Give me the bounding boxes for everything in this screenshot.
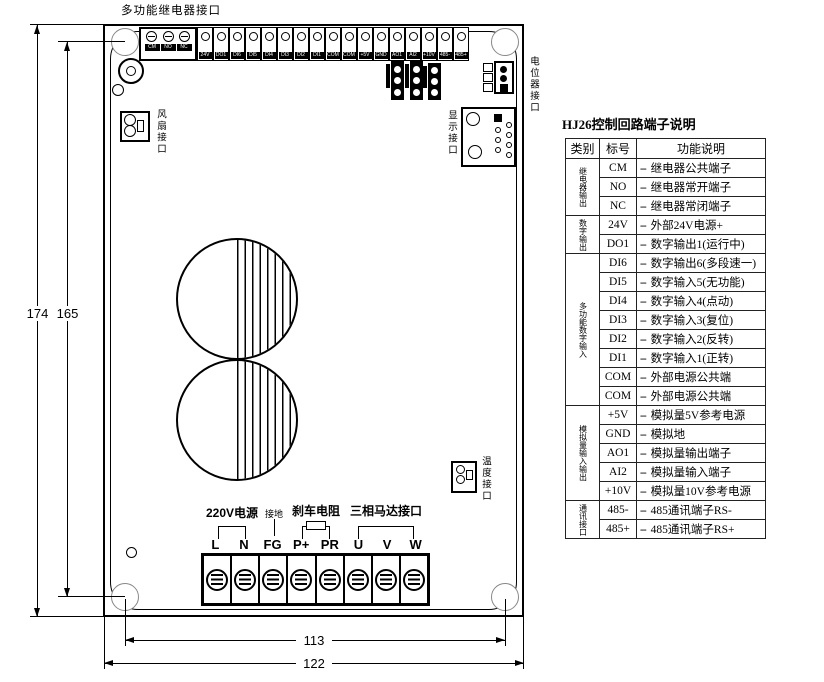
control-terminal-cell: DO1 [213, 27, 229, 61]
table-title: HJ26控制回路端子说明 [562, 114, 696, 133]
power-terminal-screw [262, 569, 284, 591]
power-terminal-label: W [401, 537, 430, 552]
display-hole [468, 145, 482, 159]
dim-arrow [125, 637, 134, 643]
control-terminal-screw [201, 32, 210, 41]
power-terminal-screw [234, 569, 256, 591]
control-terminal-label: DI4 [263, 52, 276, 59]
desc-dash: -- [640, 429, 646, 441]
power-terminal-cell [345, 556, 373, 603]
control-terminal-cell: 24V [197, 27, 213, 61]
control-terminal-screw [265, 32, 274, 41]
desc-cell: --外部电源公共端 [637, 387, 766, 406]
control-terminal-cell: 485+ [453, 27, 469, 61]
control-terminal-cell: AI2 [405, 27, 421, 61]
power-terminal-cell [373, 556, 401, 603]
code-cell: DI6 [600, 254, 637, 273]
control-terminal-screw [281, 32, 290, 41]
display-pin [506, 152, 512, 158]
power-terminal-screw [403, 569, 425, 591]
fan-pin [124, 125, 136, 137]
pot-interface-label: 电位器接口 [528, 56, 539, 114]
code-cell: GND [600, 425, 637, 444]
jumper-tag [423, 66, 427, 88]
desc-cell: --模拟地 [637, 425, 766, 444]
desc-dash: -- [640, 353, 646, 365]
code-cell: 485+ [600, 520, 637, 539]
power-terminal-label: N [230, 537, 259, 552]
ground-leader-line [274, 519, 275, 536]
control-terminal-screw [441, 32, 450, 41]
control-terminal-label: DI3 [279, 52, 292, 59]
extension-line [30, 616, 103, 617]
desc-dash: -- [640, 391, 646, 403]
control-terminal-screw [297, 32, 306, 41]
dim-value-width-holes: 113 [296, 633, 332, 648]
relay-terminal-label: NO [161, 44, 176, 51]
desc-cell: --485通讯端子RS+ [637, 520, 766, 539]
power-terminal-cell [260, 556, 288, 603]
power-terminal-label: L [201, 537, 230, 552]
control-terminal-label: AO1 [391, 52, 404, 59]
capacitor-top [176, 238, 298, 360]
temp-tab [466, 470, 473, 480]
display-pin [506, 142, 512, 148]
control-terminal-label: GND [375, 52, 388, 59]
display-pin [506, 122, 512, 128]
control-terminal-screw [329, 32, 338, 41]
category-cell: 通讯接口 [566, 501, 600, 539]
control-terminal-cell: DI2 [293, 27, 309, 61]
display-pin [495, 137, 501, 143]
dim-arrow [515, 660, 524, 666]
code-cell: NC [600, 197, 637, 216]
desc-cell: --继电器公共端子 [637, 159, 766, 178]
desc-dash: -- [640, 524, 646, 536]
code-cell: COM [600, 387, 637, 406]
motor-group-label: 三相马达接口 [346, 502, 426, 519]
jumper-tag [386, 64, 390, 88]
control-terminal-label: 485- [439, 52, 452, 59]
pcb-terminal-diagram: 多功能继电器接口 CMNONC 24VDO1DI6DI5DI4DI3DI2DI1… [0, 0, 824, 682]
desc-cell: --模拟量10V参考电源 [637, 482, 766, 501]
desc-cell: --模拟量5V参考电源 [637, 406, 766, 425]
code-cell: 24V [600, 216, 637, 235]
control-terminal-cell: +5V [357, 27, 373, 61]
relay-labels: CMNONC [141, 44, 195, 51]
code-cell: +5V [600, 406, 637, 425]
power-terminal-block [201, 553, 430, 606]
fan-tab [137, 120, 144, 132]
power-terminal-cell [232, 556, 260, 603]
power-terminal-screw [290, 569, 312, 591]
control-terminal-screw [249, 32, 258, 41]
desc-dash: -- [640, 486, 646, 498]
desc-dash: -- [640, 239, 646, 251]
control-terminal-label: DO1 [215, 52, 228, 59]
dim-arrow [64, 42, 70, 51]
desc-cell: --模拟量输入端子 [637, 463, 766, 482]
temp-interface-label: 温度接口 [480, 456, 491, 502]
control-terminal-cell: DI1 [309, 27, 325, 61]
power-terminal-labels: LNFGP+PRUVW [201, 537, 430, 552]
relay-terminal-screw [146, 31, 157, 42]
display-pin [495, 147, 501, 153]
control-terminal-screw [361, 32, 370, 41]
control-terminal-strip: 24VDO1DI6DI5DI4DI3DI2DI1COMCOM+5VGNDAO1A… [197, 27, 469, 61]
display-pin [495, 127, 501, 133]
control-terminal-label: COM [343, 52, 356, 59]
code-cell: CM [600, 159, 637, 178]
control-terminal-cell: AO1 [389, 27, 405, 61]
control-terminal-label: COM [327, 52, 340, 59]
brake-resistor-symbol [306, 521, 326, 530]
code-cell: NO [600, 178, 637, 197]
dim-value-height-holes: 165 [53, 306, 82, 321]
control-terminal-cell: 485- [437, 27, 453, 61]
power-terminal-label: PR [316, 537, 345, 552]
display-pin [506, 132, 512, 138]
table-row: 多功能数字输入DI6--数字输出6(多段速一) [566, 254, 766, 273]
capacitor-bottom [176, 359, 298, 481]
fan-interface-label: 风扇接口 [155, 109, 166, 155]
pot-pin-square [500, 84, 508, 92]
display-hole [466, 112, 480, 126]
control-terminal-label: 485+ [455, 52, 468, 59]
desc-cell: --485通讯端子RS- [637, 501, 766, 520]
power-terminal-cell [317, 556, 345, 603]
power-terminal-label: U [344, 537, 373, 552]
desc-dash: -- [640, 505, 646, 517]
power-terminal-label: FG [258, 537, 287, 552]
table-row: 通讯接口485---485通讯端子RS- [566, 501, 766, 520]
pot-pin-box [483, 73, 493, 82]
control-terminal-screw [217, 32, 226, 41]
control-terminal-cell: COM [325, 27, 341, 61]
power-terminal-cell [204, 556, 232, 603]
power-terminal-label: P+ [287, 537, 316, 552]
desc-dash: -- [640, 315, 646, 327]
power-terminal-screw [206, 569, 228, 591]
ring-hole-inner [126, 66, 136, 76]
terminal-description-table: 类别 标号 功能说明 继电器输出CM--继电器公共端子NO--继电器常开端子NC… [565, 138, 766, 539]
jumper-block-2 [410, 61, 423, 100]
header-function: 功能说明 [637, 139, 766, 159]
desc-cell: --数字输入5(无功能) [637, 273, 766, 292]
desc-cell: --数字输出6(多段速一) [637, 254, 766, 273]
power-terminal-label: V [373, 537, 402, 552]
desc-dash: -- [640, 467, 646, 479]
power-terminal-screw [375, 569, 397, 591]
desc-dash: -- [640, 182, 646, 194]
extension-line [505, 599, 506, 646]
desc-cell: --外部24V电源+ [637, 216, 766, 235]
code-cell: DI1 [600, 349, 637, 368]
relay-terminal-screw [163, 31, 174, 42]
control-terminal-label: DI5 [247, 52, 260, 59]
power-terminal-screw [319, 569, 341, 591]
control-terminal-label: 24V [199, 52, 212, 59]
control-terminal-cell: +10V [421, 27, 437, 61]
control-terminal-screw [233, 32, 242, 41]
control-terminal-screw [457, 32, 466, 41]
relay-screws [141, 29, 195, 42]
desc-dash: -- [640, 334, 646, 346]
table-row: 继电器输出CM--继电器公共端子 [566, 159, 766, 178]
power-terminal-cell [288, 556, 316, 603]
category-cell: 继电器输出 [566, 159, 600, 216]
category-cell: 数字输出 [566, 216, 600, 254]
dim-arrow [34, 608, 40, 617]
jumper-block-3 [428, 63, 441, 100]
pot-pin-box [483, 63, 493, 72]
dim-value-height-outer: 174 [23, 306, 52, 321]
desc-dash: -- [640, 277, 646, 289]
power-terminal-screw [347, 569, 369, 591]
control-terminal-label: AI2 [407, 52, 420, 59]
desc-cell: --继电器常开端子 [637, 178, 766, 197]
pot-pin-box [483, 83, 493, 92]
desc-cell: --外部电源公共端 [637, 368, 766, 387]
control-terminal-screw [377, 32, 386, 41]
control-terminal-label: DI1 [311, 52, 324, 59]
desc-cell: --数字输入4(点动) [637, 292, 766, 311]
control-terminal-screw [393, 32, 402, 41]
header-category: 类别 [566, 139, 600, 159]
code-cell: DI3 [600, 311, 637, 330]
desc-dash: -- [640, 410, 646, 422]
category-cell: 多功能数字输入 [566, 254, 600, 406]
control-terminal-screw [425, 32, 434, 41]
dim-value-width-outer: 122 [296, 656, 332, 671]
code-cell: AO1 [600, 444, 637, 463]
code-cell: DI4 [600, 292, 637, 311]
desc-cell: --数字输出1(运行中) [637, 235, 766, 254]
edge-notch [112, 84, 124, 96]
control-terminal-cell: COM [341, 27, 357, 61]
header-code: 标号 [600, 139, 637, 159]
relay-terminal-label: CM [145, 44, 160, 51]
dim-line-174 [37, 25, 38, 617]
dim-arrow [104, 660, 113, 666]
desc-dash: -- [640, 220, 646, 232]
category-cell: 模拟量输入输出 [566, 406, 600, 501]
desc-dash: -- [640, 163, 646, 175]
code-cell: +10V [600, 482, 637, 501]
control-terminal-cell: DI4 [261, 27, 277, 61]
relay-terminal-label: NC [177, 44, 192, 51]
desc-cell: --数字输入3(复位) [637, 311, 766, 330]
jumper-tag [405, 64, 409, 88]
desc-dash: -- [640, 201, 646, 213]
control-terminal-screw [313, 32, 322, 41]
code-cell: AI2 [600, 463, 637, 482]
control-terminal-cell: DI6 [229, 27, 245, 61]
mounting-hole-top-left [111, 28, 139, 56]
control-terminal-screw [409, 32, 418, 41]
desc-cell: --数字输入2(反转) [637, 330, 766, 349]
code-cell: 485- [600, 501, 637, 520]
control-terminal-label: +10V [423, 52, 436, 59]
edge-notch [126, 547, 137, 558]
control-terminal-cell: DI3 [277, 27, 293, 61]
control-terminal-label: DI2 [295, 52, 308, 59]
control-terminal-cell: GND [373, 27, 389, 61]
mounting-hole-top-right [491, 28, 519, 56]
dim-arrow [496, 637, 505, 643]
table-row: 数字输出24V--外部24V电源+ [566, 216, 766, 235]
relay-interface-caption: 多功能继电器接口 [121, 2, 221, 18]
power-terminal-cell [401, 556, 427, 603]
extension-line [30, 24, 103, 25]
desc-dash: -- [640, 372, 646, 384]
dim-arrow [64, 588, 70, 597]
code-cell: DI5 [600, 273, 637, 292]
display-interface-label: 显示接口 [446, 110, 457, 156]
code-cell: DI2 [600, 330, 637, 349]
desc-cell: --模拟量输出端子 [637, 444, 766, 463]
dim-arrow [34, 25, 40, 34]
brake-group-label: 刹车电阻 [286, 502, 346, 519]
relay-terminal-screw [179, 31, 190, 42]
table-row: 模拟量输入输出+5V--模拟量5V参考电源 [566, 406, 766, 425]
temp-pin [456, 475, 465, 484]
desc-dash: -- [640, 296, 646, 308]
control-terminal-cell: DI5 [245, 27, 261, 61]
desc-cell: --数字输入1(正转) [637, 349, 766, 368]
desc-dash: -- [640, 448, 646, 460]
temp-pin [456, 465, 465, 474]
table-header-row: 类别 标号 功能说明 [566, 139, 766, 159]
control-terminal-screw [345, 32, 354, 41]
display-pin1-square [494, 114, 502, 122]
pot-pin [500, 66, 507, 73]
relay-terminal-block: CMNONC [139, 27, 197, 61]
control-terminal-label: DI6 [231, 52, 244, 59]
pot-pin [500, 75, 507, 82]
control-terminal-label: +5V [359, 52, 372, 59]
desc-dash: -- [640, 258, 646, 270]
desc-cell: --继电器常闭端子 [637, 197, 766, 216]
code-cell: DO1 [600, 235, 637, 254]
code-cell: COM [600, 368, 637, 387]
jumper-block-1 [391, 61, 404, 100]
